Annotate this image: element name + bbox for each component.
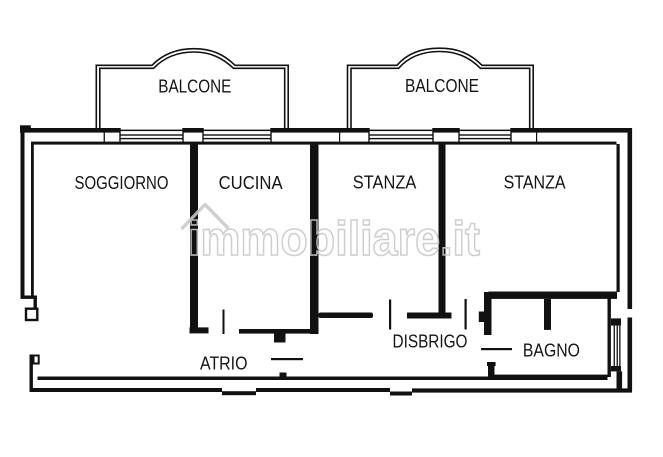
- svg-text:BAGNO: BAGNO: [523, 340, 580, 361]
- svg-text:STANZA: STANZA: [353, 172, 417, 193]
- svg-text:DISBRIGO: DISBRIGO: [393, 331, 468, 352]
- svg-text:BALCONE: BALCONE: [405, 75, 479, 96]
- svg-text:STANZA: STANZA: [504, 172, 567, 193]
- svg-text:SOGGIORNO: SOGGIORNO: [75, 172, 169, 193]
- svg-text:ATRIO: ATRIO: [200, 353, 248, 374]
- svg-text:BALCONE: BALCONE: [158, 76, 231, 97]
- svg-text:immobiliare.it: immobiliare.it: [188, 213, 480, 266]
- svg-text:CUCINA: CUCINA: [219, 172, 284, 193]
